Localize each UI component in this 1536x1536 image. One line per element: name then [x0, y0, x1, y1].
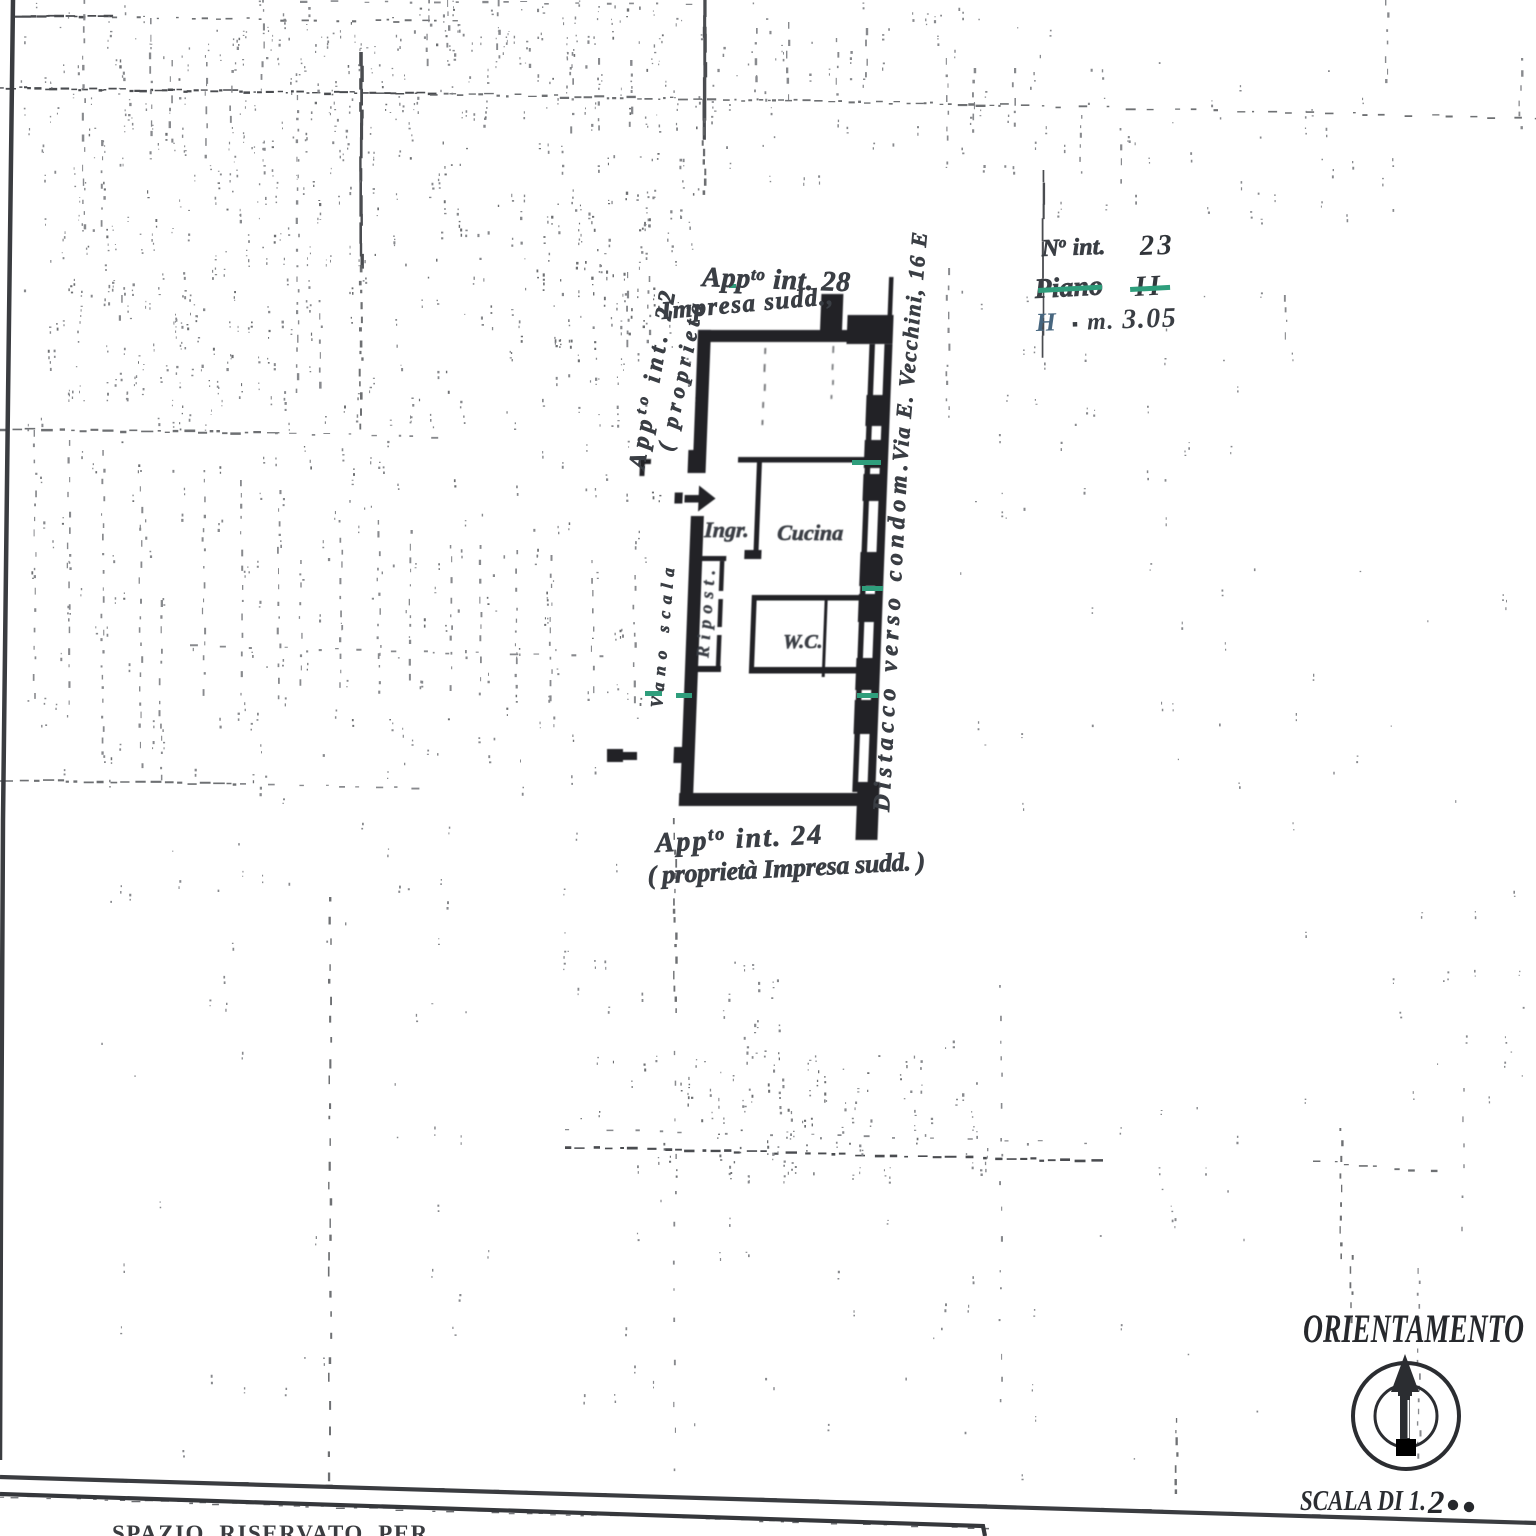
svg-text:ORIENTAMENTO: ORIENTAMENTO	[1303, 1306, 1524, 1351]
svg-text:23: 23	[1138, 229, 1175, 262]
svg-text:H: H	[1034, 307, 1057, 337]
svg-text:Cucina: Cucina	[777, 520, 844, 545]
svg-text:W.C.: W.C.	[783, 631, 823, 653]
svg-text:SPAZIO RISERVATO PER: SPAZIO RISERVATO PER	[112, 1521, 429, 1536]
svg-text:2: 2	[1427, 1485, 1445, 1521]
svg-text:Ingr.: Ingr.	[703, 517, 750, 542]
svg-text:SCALA DI 1.: SCALA DI 1.	[1300, 1486, 1426, 1517]
svg-text:No int.: No int.	[1040, 234, 1105, 262]
